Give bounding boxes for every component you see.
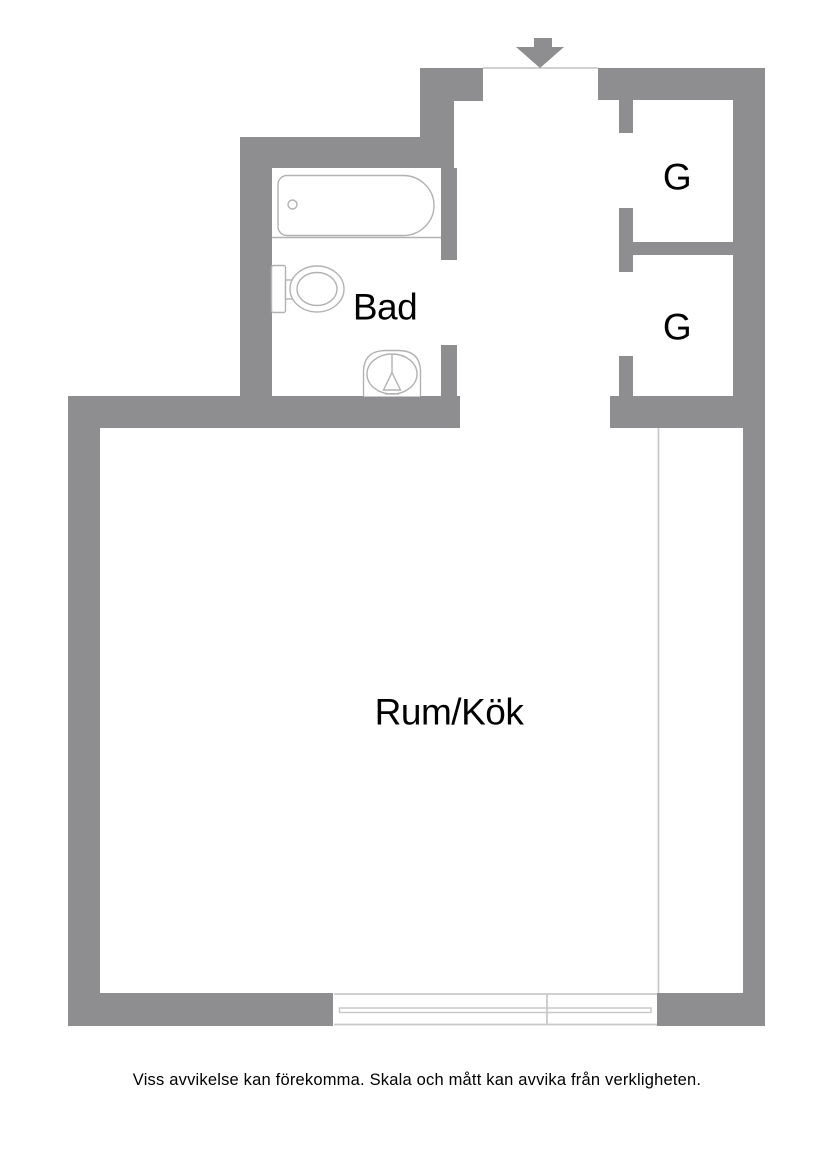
room-label-closet-bottom: G [663, 309, 691, 346]
disclaimer-text: Viss avvikelse kan förekomma. Skala och … [0, 1071, 834, 1090]
sink-icon [364, 351, 421, 397]
room-label-bathroom: Bad [353, 289, 417, 326]
entrance-arrow-icon [516, 38, 564, 68]
floor-plan: Bad G G Rum/Kök Viss avvikelse kan förek… [0, 0, 834, 1152]
fixtures-layer [0, 0, 834, 1152]
room-label-closet-top: G [663, 159, 691, 196]
toilet-icon [272, 266, 345, 313]
window-icon [334, 994, 657, 1025]
room-label-main: Rum/Kök [375, 694, 524, 731]
bathtub-icon [272, 176, 441, 238]
